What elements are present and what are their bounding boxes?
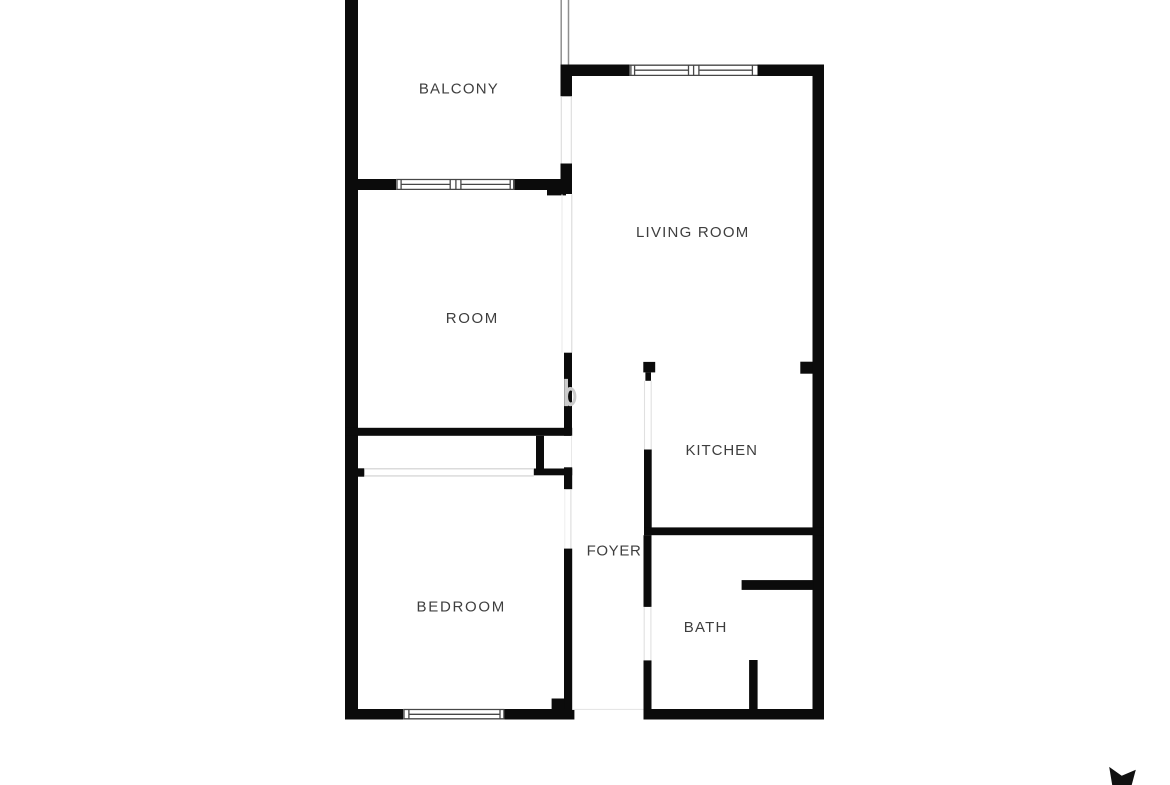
svg-text:LIVING ROOM: LIVING ROOM — [636, 224, 748, 241]
svg-text:FOYER: FOYER — [587, 543, 641, 560]
svg-text:BATH: BATH — [684, 619, 727, 636]
svg-text:BEDROOM: BEDROOM — [417, 598, 505, 615]
svg-text:BALCONY: BALCONY — [419, 81, 498, 98]
svg-text:ROOM: ROOM — [446, 310, 498, 327]
svg-text:KITCHEN: KITCHEN — [685, 442, 757, 459]
